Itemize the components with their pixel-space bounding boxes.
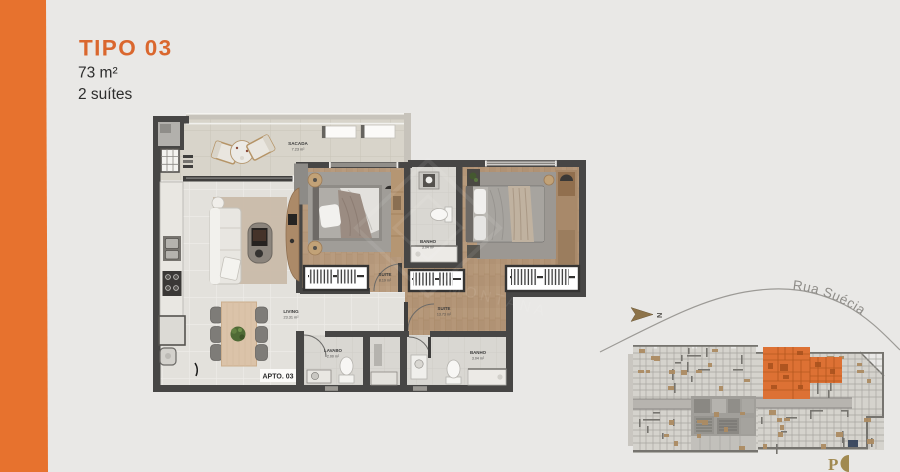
- svg-text:7.23 m²: 7.23 m²: [292, 148, 306, 152]
- svg-text:13.73 m²: 13.73 m²: [437, 313, 452, 317]
- svg-text:3.04 m²: 3.04 m²: [422, 246, 435, 250]
- svg-text:23.31 m²: 23.31 m²: [284, 316, 300, 320]
- svg-text:SACADA: SACADA: [288, 141, 308, 146]
- svg-text:APTO. 03: APTO. 03: [263, 374, 294, 381]
- svg-text:8.19 m²: 8.19 m²: [379, 279, 392, 283]
- svg-text:N: N: [655, 313, 664, 318]
- svg-text:SUITE: SUITE: [438, 306, 451, 311]
- svg-text:P: P: [828, 455, 838, 472]
- svg-text:LAVABO: LAVABO: [324, 348, 342, 353]
- svg-text:2 suítes: 2 suítes: [78, 86, 133, 103]
- svg-text:2.00 m²: 2.00 m²: [327, 355, 340, 359]
- svg-text:73 m²: 73 m²: [78, 65, 118, 82]
- svg-text:TIPO 03: TIPO 03: [79, 36, 173, 61]
- svg-text:3.04 m²: 3.04 m²: [472, 357, 485, 361]
- svg-text:SUITE: SUITE: [379, 272, 392, 277]
- svg-text:BANHO: BANHO: [420, 239, 437, 244]
- svg-text:LIVING: LIVING: [283, 309, 299, 314]
- svg-text:BANHO: BANHO: [470, 350, 487, 355]
